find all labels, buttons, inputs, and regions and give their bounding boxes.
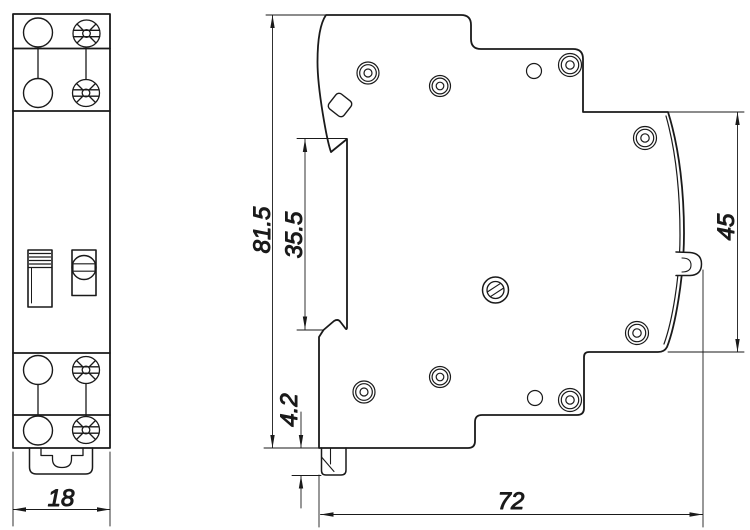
- dimension-overall-height: 81.5: [249, 15, 276, 448]
- din-clip-foot-front: [30, 448, 93, 474]
- rotary-slot: [73, 264, 95, 271]
- terminal-hole: [24, 79, 53, 108]
- dimension-front-recess-height: 35.5: [281, 139, 308, 330]
- screw-head-icon: [73, 20, 100, 47]
- dimension-front-width: 18: [13, 452, 110, 526]
- dimension-text-foot-height: 4.2: [276, 393, 303, 426]
- screw-head-icon: [73, 357, 100, 384]
- dimension-text-front-width: 18: [48, 485, 75, 512]
- dimension-text-front-recess-height: 35.5: [281, 211, 308, 258]
- foot-inner-detail: [322, 449, 335, 472]
- screw-head-icon: [73, 80, 100, 107]
- dimension-overall-depth: 72: [321, 488, 703, 517]
- technical-drawing-page: 18: [0, 0, 750, 530]
- terminal-funnel-lines: [38, 47, 86, 417]
- terminal-screws: [73, 20, 101, 444]
- switch-grip-stripes: [28, 254, 52, 268]
- toggle-switch: [28, 250, 52, 307]
- screw-head-icon: [73, 417, 100, 444]
- release-knob: [676, 252, 702, 276]
- dimension-text-din-recess-height: 45: [713, 213, 740, 240]
- terminal-hole: [24, 416, 53, 445]
- din-module-dimension-drawing: 18: [0, 0, 750, 530]
- dimension-arrowheads: [299, 435, 303, 489]
- dimension-text-overall-depth: 72: [498, 488, 525, 515]
- front-view-outline: [13, 14, 110, 448]
- din-clip-foot-side: [322, 448, 347, 475]
- front-view: 18: [13, 14, 110, 526]
- terminal-hole: [24, 356, 53, 385]
- dimension-foot-height: 4.2: [276, 393, 303, 508]
- terminal-wire-holes: [24, 18, 87, 445]
- dimension-text-overall-height: 81.5: [249, 206, 276, 253]
- terminal-hole: [24, 18, 53, 47]
- rotary-selector: [72, 250, 96, 296]
- din-clip-notch: [41, 448, 83, 468]
- rotary-dial-icon: [72, 256, 96, 280]
- dimension-din-recess-height: 45: [713, 112, 740, 352]
- side-view: 81.5 35.5 4.2 45 72: [249, 15, 744, 527]
